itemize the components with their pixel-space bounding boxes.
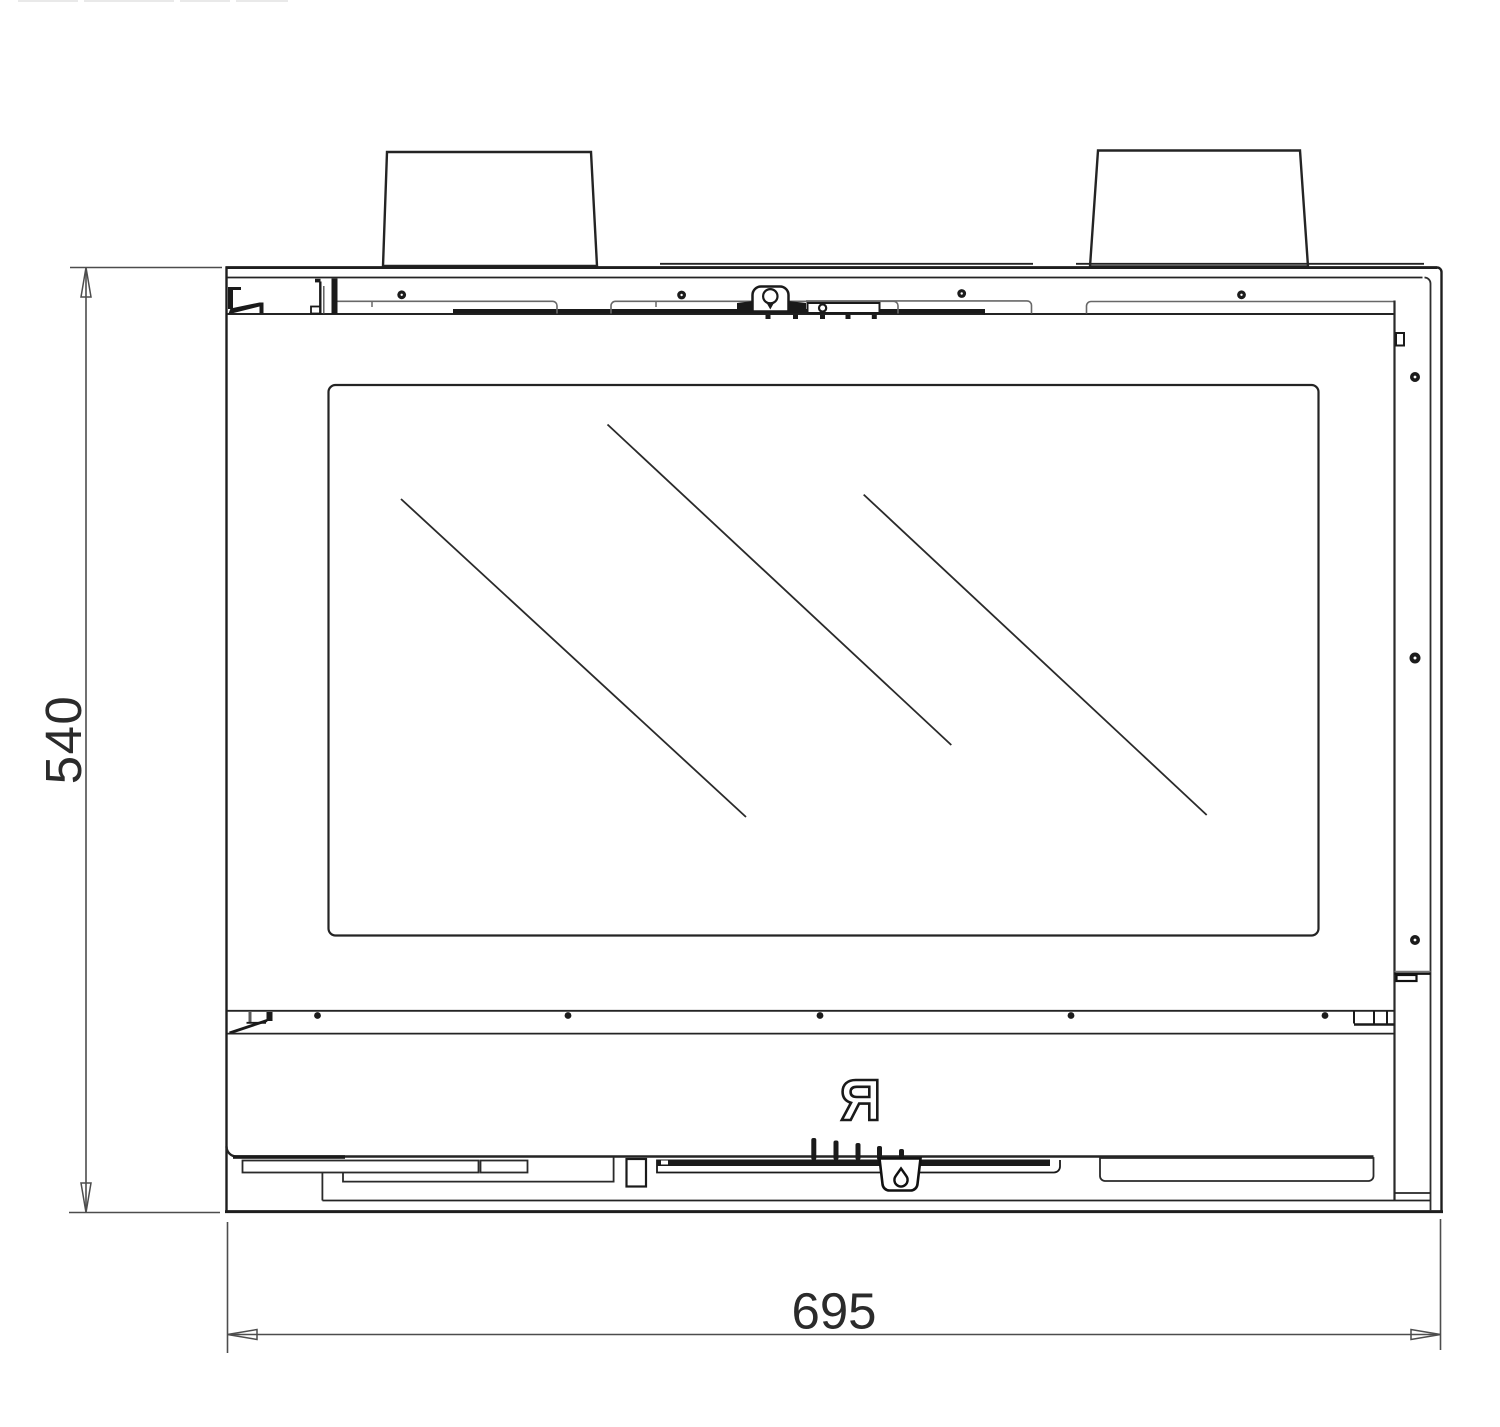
svg-text:695: 695 (791, 1283, 876, 1340)
svg-text:540: 540 (35, 695, 92, 785)
